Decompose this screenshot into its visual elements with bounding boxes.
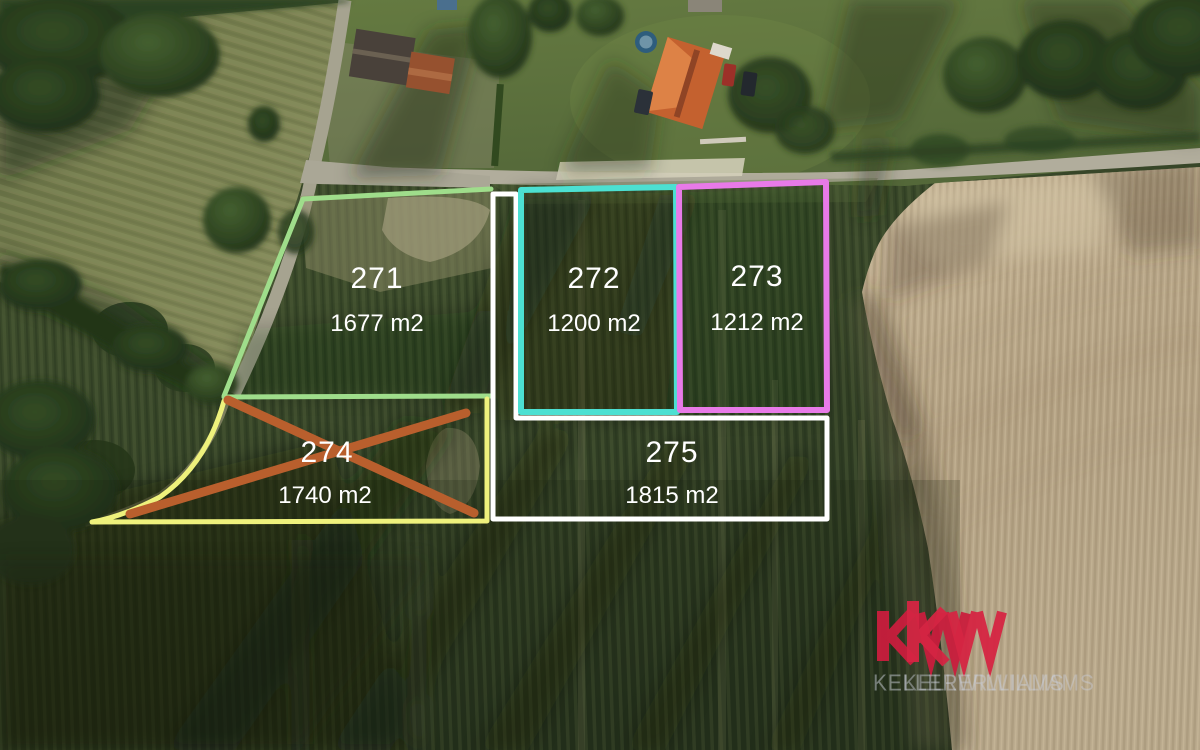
svg-text:1815 m2: 1815 m2 <box>625 482 718 509</box>
svg-text:1740 m2: 1740 m2 <box>278 482 371 509</box>
svg-text:1677 m2: 1677 m2 <box>330 310 423 337</box>
svg-text:KELLERWILLIAMS: KELLERWILLIAMS <box>903 670 1095 696</box>
svg-text:273: 273 <box>730 260 783 293</box>
svg-text:272: 272 <box>567 262 620 295</box>
svg-text:274: 274 <box>300 436 353 469</box>
svg-text:1212 m2: 1212 m2 <box>710 309 803 336</box>
svg-text:1200 m2: 1200 m2 <box>547 310 640 337</box>
svg-text:271: 271 <box>350 262 403 295</box>
svg-text:275: 275 <box>645 436 698 469</box>
